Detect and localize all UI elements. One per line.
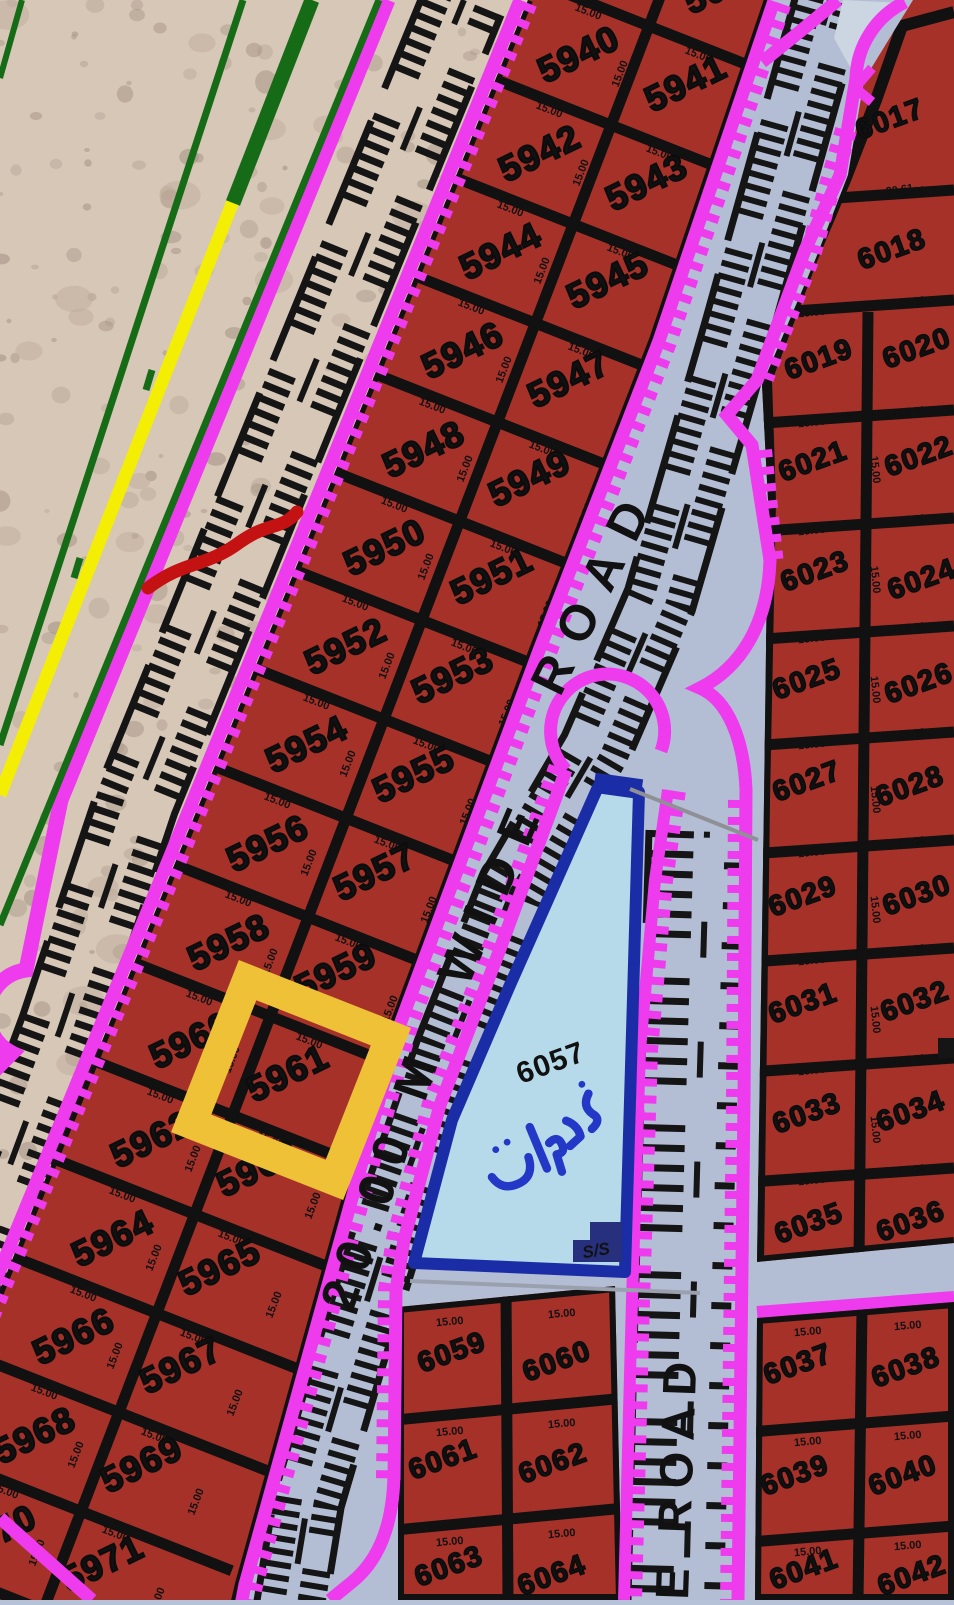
svg-text:15.00: 15.00 bbox=[794, 1435, 822, 1449]
svg-text:15.00: 15.00 bbox=[894, 1539, 922, 1553]
svg-text:15.00: 15.00 bbox=[548, 1527, 576, 1541]
svg-text:15.00: 15.00 bbox=[548, 1307, 576, 1321]
svg-text:15.00: 15.00 bbox=[894, 1319, 922, 1333]
svg-text:E ROAD: E ROAD bbox=[645, 1350, 707, 1600]
svg-text:15.00: 15.00 bbox=[436, 1315, 464, 1329]
svg-text:15.00: 15.00 bbox=[548, 1417, 576, 1431]
svg-text:15.00: 15.00 bbox=[794, 1325, 822, 1339]
svg-text:15.00: 15.00 bbox=[894, 1429, 922, 1443]
